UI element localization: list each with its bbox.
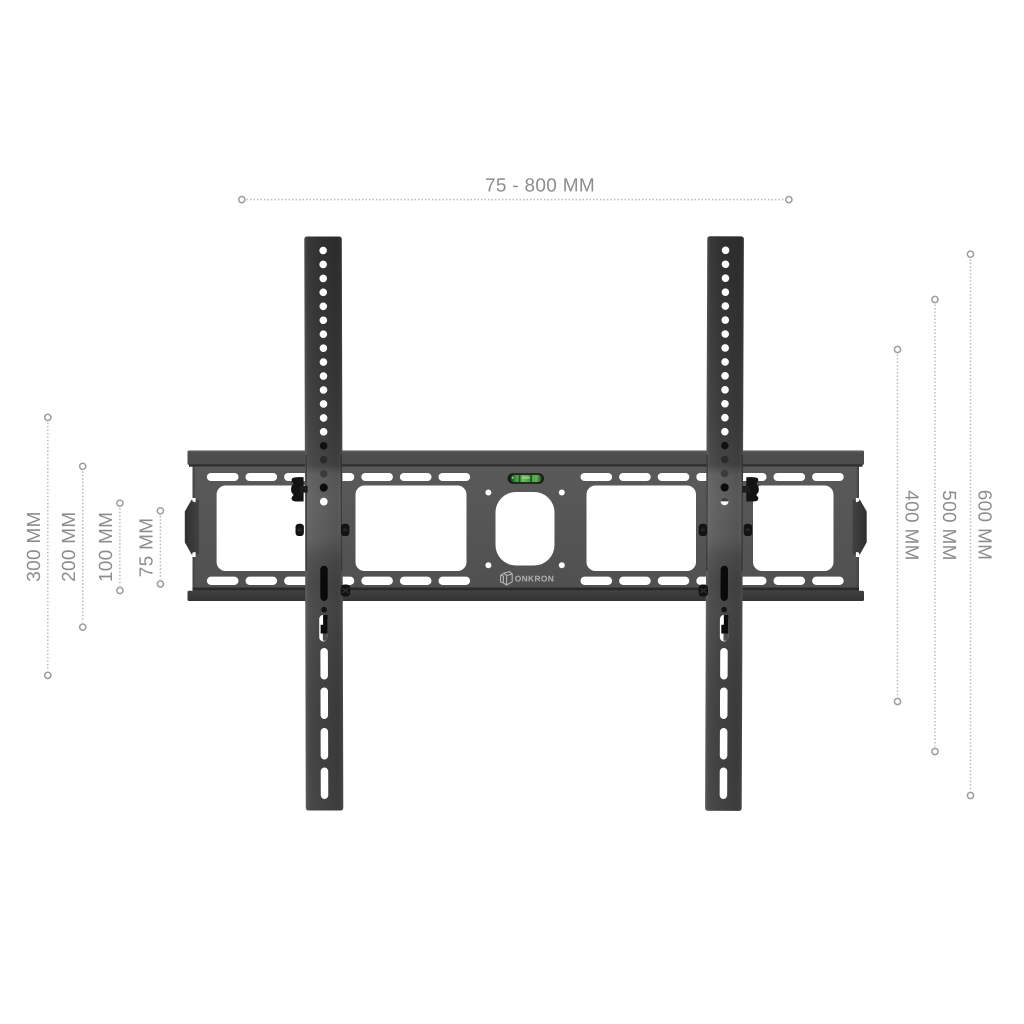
svg-text:75 MM: 75 MM: [137, 518, 158, 578]
svg-text:75 - 800 MM: 75 - 800 MM: [485, 176, 595, 197]
svg-text:200 MM: 200 MM: [59, 511, 80, 581]
svg-text:ONKRON: ONKRON: [515, 574, 554, 584]
svg-text:300 MM: 300 MM: [24, 511, 45, 581]
svg-text:500 MM: 500 MM: [938, 490, 959, 560]
svg-text:100 MM: 100 MM: [96, 512, 117, 582]
svg-text:600 MM: 600 MM: [973, 490, 994, 560]
svg-text:400 MM: 400 MM: [900, 490, 921, 560]
